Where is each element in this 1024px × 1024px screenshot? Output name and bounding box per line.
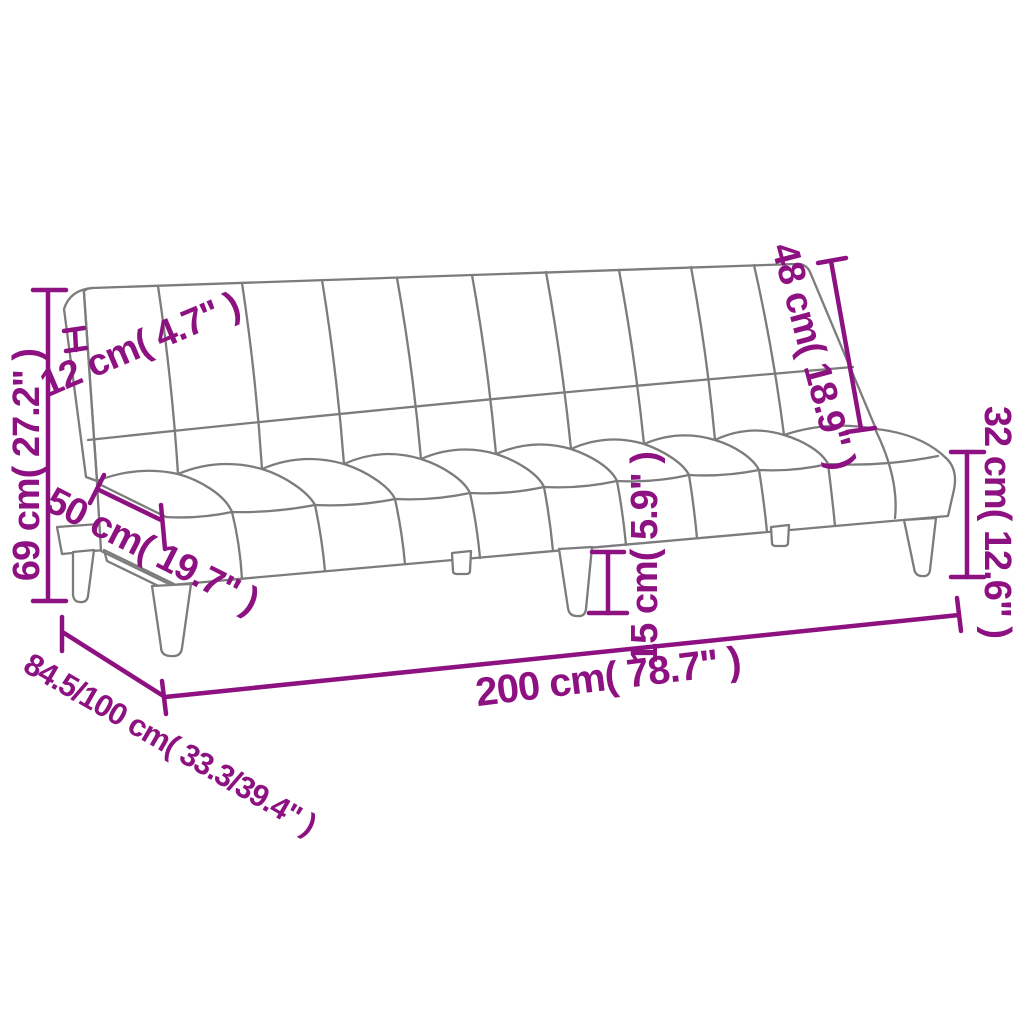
rear-middle-leg <box>452 551 471 574</box>
dimension-diagram-page: 69 cm( 27.2" ) 12 cm( 4.7" ) 50 cm( 19.7… <box>0 0 1024 1024</box>
front-middle-leg <box>559 547 592 616</box>
front-left-leg <box>152 584 191 656</box>
dim-leg-height <box>589 552 627 613</box>
leg-height-label: 15 cm( 5.9" ) <box>624 452 666 664</box>
depth-label: 84.5/100 cm( 33.3/39.4" ) <box>18 646 322 842</box>
seat-height-label: 32 cm( 12.6" ) <box>976 406 1018 638</box>
front-right-leg <box>904 518 936 576</box>
rear-left-leg <box>73 550 94 602</box>
sofa-dimension-diagram: 69 cm( 27.2" ) 12 cm( 4.7" ) 50 cm( 19.7… <box>0 0 1024 1024</box>
rear-right-leg <box>771 525 789 546</box>
